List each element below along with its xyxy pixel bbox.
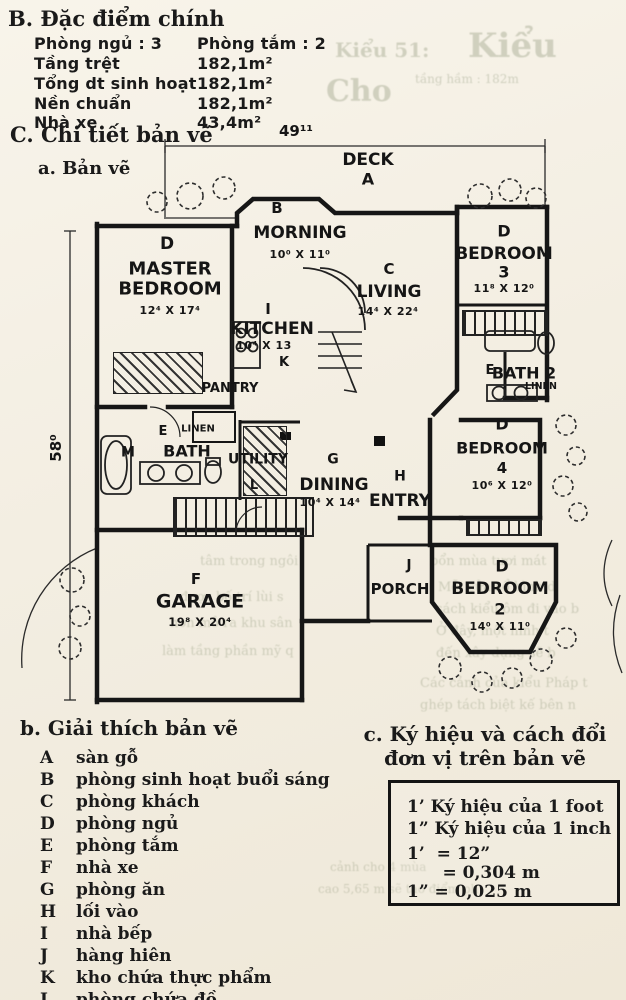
units-heading-line2: đơn vị trên bản vẽ: [352, 746, 618, 770]
room-dims-master: 12⁴ X 17⁴: [140, 305, 201, 317]
room-letter-bedroom4: D: [495, 415, 508, 432]
room-letter-bath-main: E: [159, 425, 168, 439]
legend-heading: b. Giải thích bản vẽ: [20, 716, 238, 740]
room-letter-bedroom2: D: [495, 557, 508, 574]
legend-key: A: [40, 748, 53, 768]
legend-key: K: [40, 968, 55, 988]
legend-text: nhà xe: [76, 858, 139, 878]
bedroom4-closet-hatch: [466, 519, 542, 536]
legend-text: lối vào: [76, 902, 138, 922]
legend-key: F: [40, 858, 52, 878]
staircase-hatch: [173, 497, 314, 537]
room-dims-bedroom3: 11⁸ X 12⁰: [474, 283, 535, 295]
dimension-height-label: 58⁰: [48, 434, 64, 461]
room-letter-pantry: K: [279, 356, 289, 370]
legend-text: phòng ăn: [76, 880, 165, 900]
room-letter-master: D: [160, 235, 174, 253]
legend-text: hàng hiên: [76, 946, 172, 966]
room-dims-bedroom2: 14⁰ X 11⁰: [470, 621, 531, 633]
room-letter-utility: L: [250, 479, 258, 493]
legend-text: phòng ngủ: [76, 814, 178, 834]
room-label-living: LIVING: [357, 283, 422, 301]
room-label-dining: DINING: [299, 476, 368, 494]
legend-key: H: [40, 902, 56, 922]
room-dims-living: 14⁴ X 22⁴: [358, 306, 419, 318]
room-letter-entry: H: [394, 469, 406, 484]
room-letter-living: C: [383, 261, 394, 277]
room-letter-deck: A: [362, 170, 374, 187]
room-dims-garage: 19⁸ X 20⁴: [168, 616, 231, 628]
units-heading: c. Ký hiệu và cách đổi đơn vị trên bản v…: [352, 722, 618, 770]
legend-key: B: [40, 770, 54, 790]
room-letter-bedroom3: D: [497, 222, 510, 239]
scanned-document-page: Kiểu 51: Kiểu Cho tầng hầm : 182m bổn mù…: [0, 0, 626, 1000]
room-label-pantry: PANTRY: [202, 382, 259, 396]
master-closet-hatch: [113, 352, 203, 394]
units-line: 1” Ký hiệu của 1 inch: [407, 819, 611, 839]
legend-key: I: [40, 924, 48, 944]
room-letter-kitchen: I: [265, 301, 271, 317]
room-label-bath-main: BATH: [163, 442, 211, 459]
legend-text: sàn gỗ: [76, 748, 138, 768]
room-label-master-1: MASTER: [128, 259, 211, 278]
closet-label-bath-linen: LINEN: [181, 425, 215, 436]
room-dims-morning: 10⁰ X 11⁰: [270, 249, 331, 261]
bedroom3-closet-hatch: [462, 310, 548, 336]
room-letter-bath-m: M: [121, 445, 135, 460]
room-label-deck: DECK: [342, 151, 393, 169]
legend-text: phòng tắm: [76, 836, 179, 856]
legend-key: E: [40, 836, 53, 856]
room-dims-bedroom4: 10⁶ X 12⁰: [472, 480, 533, 492]
room-label-bedroom2: BEDROOM: [451, 580, 549, 598]
room-dims-dining: 10⁴ X 14⁴: [300, 497, 361, 509]
legend-text: phòng sinh hoạt buổi sáng: [76, 770, 330, 790]
room-label-bath2: BATH 2: [492, 364, 556, 381]
legend-text: kho chứa thực phẩm: [76, 968, 272, 988]
room-number-bedroom3: 3: [498, 263, 509, 280]
legend-key: G: [40, 880, 55, 900]
room-number-bedroom4: 4: [497, 460, 507, 476]
legend-text: nhà bếp: [76, 924, 152, 944]
closet-label-bath2-linen: LINEN: [525, 382, 557, 392]
room-label-entry: ENTRY: [369, 492, 431, 510]
legend-text: phòng chứa đồ: [76, 990, 217, 1000]
legend-key: J: [40, 946, 48, 966]
legend-key: C: [40, 792, 54, 812]
legend-key: L: [40, 990, 52, 1000]
units-line: 1’ Ký hiệu của 1 foot: [407, 797, 604, 817]
dimension-width-label: 49¹¹: [279, 123, 313, 139]
room-label-morning: MORNING: [253, 224, 346, 242]
room-label-bedroom4: BEDROOM: [456, 439, 548, 456]
units-line: 1’ = 12”: [407, 844, 490, 864]
room-label-porch: PORCH: [371, 581, 430, 597]
room-label-kitchen: KITCHEN: [230, 320, 314, 338]
units-line: 1” = 0,025 m: [407, 882, 532, 902]
room-label-bedroom3: BEDROOM: [455, 245, 553, 263]
units-line: = 0,304 m: [407, 863, 540, 883]
room-dims-kitchen: 10⁴ X 13: [236, 340, 292, 352]
room-letter-garage: F: [191, 571, 201, 587]
room-label-utility: UTILITY: [228, 452, 288, 467]
units-box: 1’ Ký hiệu của 1 foot 1” Ký hiệu của 1 i…: [388, 780, 620, 906]
room-letter-morning: B: [271, 200, 282, 216]
room-label-master-2: BEDROOM: [118, 279, 221, 298]
legend-text: phòng khách: [76, 792, 200, 812]
legend-key: D: [40, 814, 55, 834]
room-letter-porch: J: [406, 558, 411, 573]
room-label-garage: GARAGE: [156, 592, 244, 613]
units-heading-line1: c. Ký hiệu và cách đổi: [352, 722, 618, 746]
room-number-bedroom2: 2: [494, 600, 505, 617]
structural-posts: [280, 432, 385, 446]
room-letter-dining: G: [327, 452, 339, 467]
